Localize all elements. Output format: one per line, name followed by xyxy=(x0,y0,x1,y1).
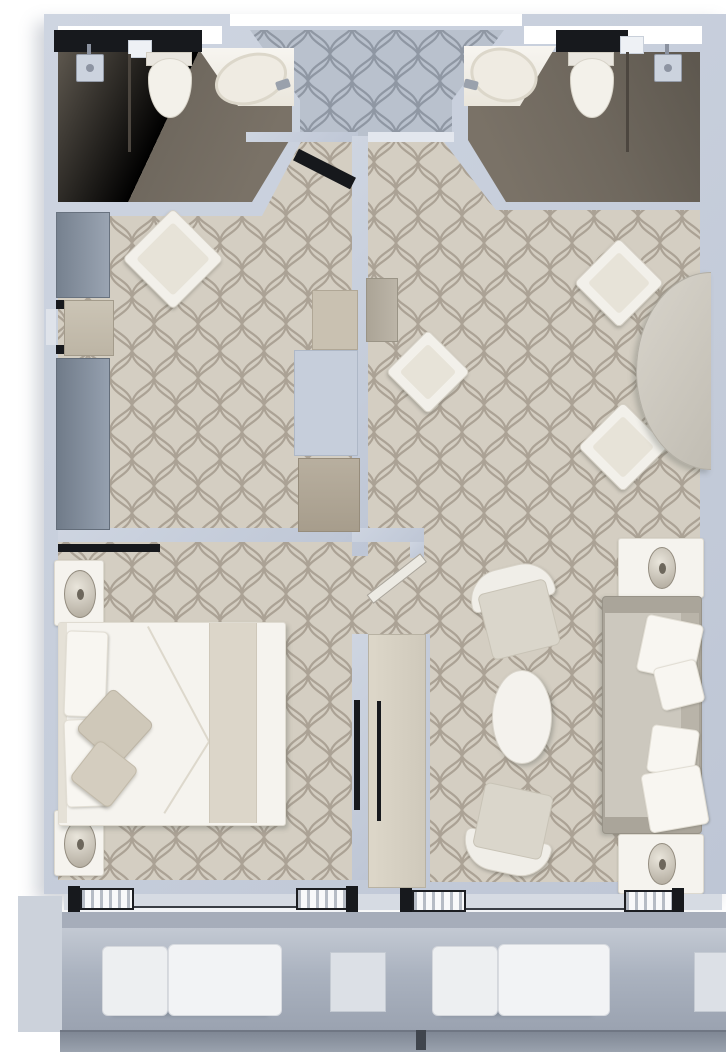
balcony-upper-strip xyxy=(60,912,726,928)
door-frame-mid-right xyxy=(400,888,412,914)
hall-bottom-wall xyxy=(246,132,358,142)
shower-partition-left xyxy=(128,54,131,152)
niche-pocket xyxy=(46,309,56,345)
shower-head-right-icon xyxy=(654,54,682,82)
wall-step-right xyxy=(620,36,644,54)
side-table-bottom xyxy=(618,834,704,894)
bed-runner xyxy=(209,623,257,823)
bedroom-closet-strip xyxy=(58,544,160,552)
door-sill-bed-left xyxy=(80,888,134,910)
door-frame-mid-left xyxy=(346,886,358,912)
living-entry-threshold xyxy=(368,132,454,142)
door-sill-bed-right xyxy=(296,888,350,910)
nightstand-top xyxy=(54,560,104,626)
side-table-top-lamp-icon xyxy=(648,547,676,589)
shower-head-left-icon xyxy=(76,54,104,82)
lounge-chair-left-back xyxy=(102,946,168,1016)
wall-niche xyxy=(64,300,114,356)
tv-credenza xyxy=(368,634,426,888)
lounge-chair-right-seat xyxy=(498,944,610,1016)
armchair-bottom xyxy=(459,772,564,880)
wardrobe-lower xyxy=(56,358,110,530)
divider-cabinet xyxy=(312,290,358,350)
bedroom-wall-tv xyxy=(354,700,360,810)
vestibule-top-wall xyxy=(352,528,424,542)
nightstand-bottom-lamp-icon xyxy=(64,820,96,868)
sofa-pillow-4 xyxy=(640,764,710,834)
shower-partition-right xyxy=(626,52,629,152)
lounge-chair-left-seat xyxy=(168,944,282,1016)
double-bed xyxy=(58,622,286,826)
balcony-bulkhead-left xyxy=(18,896,62,1032)
coffee-table xyxy=(492,670,552,764)
floor-plan xyxy=(0,0,726,1064)
divider-closet xyxy=(298,458,360,532)
utility-shaft xyxy=(294,350,358,456)
door-sill-liv-left xyxy=(412,890,466,912)
railing-divider xyxy=(416,1030,426,1050)
balcony-railing xyxy=(60,1030,726,1052)
door-sill-liv-right xyxy=(624,890,678,912)
console-desk xyxy=(366,278,398,342)
credenza-groove xyxy=(377,701,381,821)
side-table-bottom-lamp-icon xyxy=(648,843,676,885)
sofa xyxy=(602,596,702,834)
balcony-table-left xyxy=(330,952,386,1012)
balcony-table-right xyxy=(694,952,726,1012)
door-frame-right xyxy=(672,888,684,914)
nightstand-top-lamp-icon xyxy=(64,570,96,618)
door-frame-left xyxy=(68,886,80,912)
side-table-top xyxy=(618,538,704,598)
vanity-strip-right xyxy=(556,30,628,52)
lounge-chair-right-back xyxy=(432,946,498,1016)
wardrobe-upper xyxy=(56,212,110,298)
